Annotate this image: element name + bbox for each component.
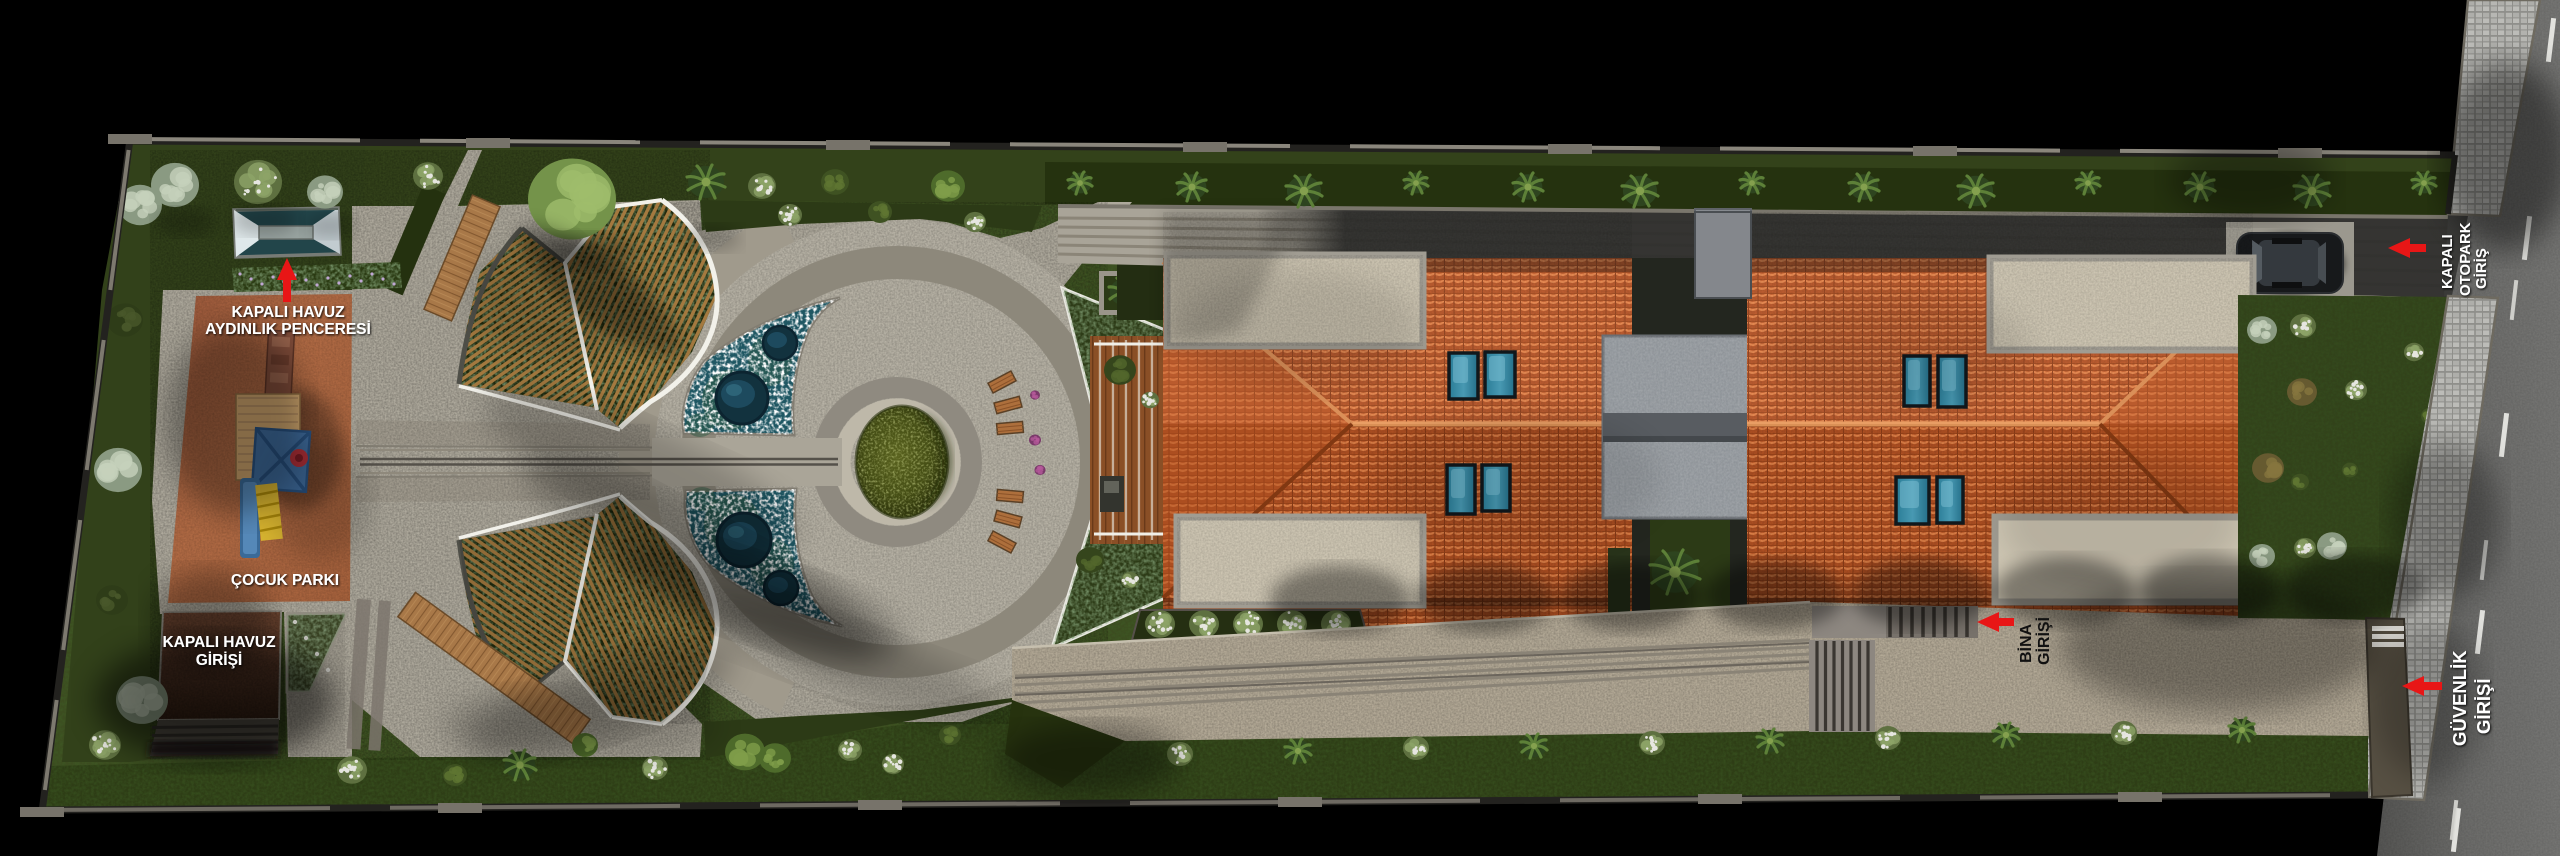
svg-text:GİRİŞİ: GİRİŞİ <box>196 652 243 669</box>
svg-text:GİRİŞ: GİRİŞ <box>2473 248 2490 289</box>
svg-text:AYDINLIK PENCERESİ: AYDINLIK PENCERESİ <box>205 321 371 338</box>
svg-text:KAPALI HAVUZ: KAPALI HAVUZ <box>231 304 345 321</box>
svg-text:GÜVENLİK: GÜVENLİK <box>2449 650 2470 746</box>
svg-text:ÇOCUK PARKI: ÇOCUK PARKI <box>231 572 339 589</box>
svg-text:GİRİŞİ: GİRİŞİ <box>2035 617 2053 665</box>
svg-text:OTOPARK: OTOPARK <box>2457 222 2474 296</box>
svg-text:KAPALI HAVUZ: KAPALI HAVUZ <box>162 634 276 651</box>
svg-text:GİRİŞİ: GİRİŞİ <box>2473 678 2494 734</box>
svg-text:BİNA: BİNA <box>2017 623 2035 663</box>
svg-text:KAPALI: KAPALI <box>2439 234 2456 289</box>
